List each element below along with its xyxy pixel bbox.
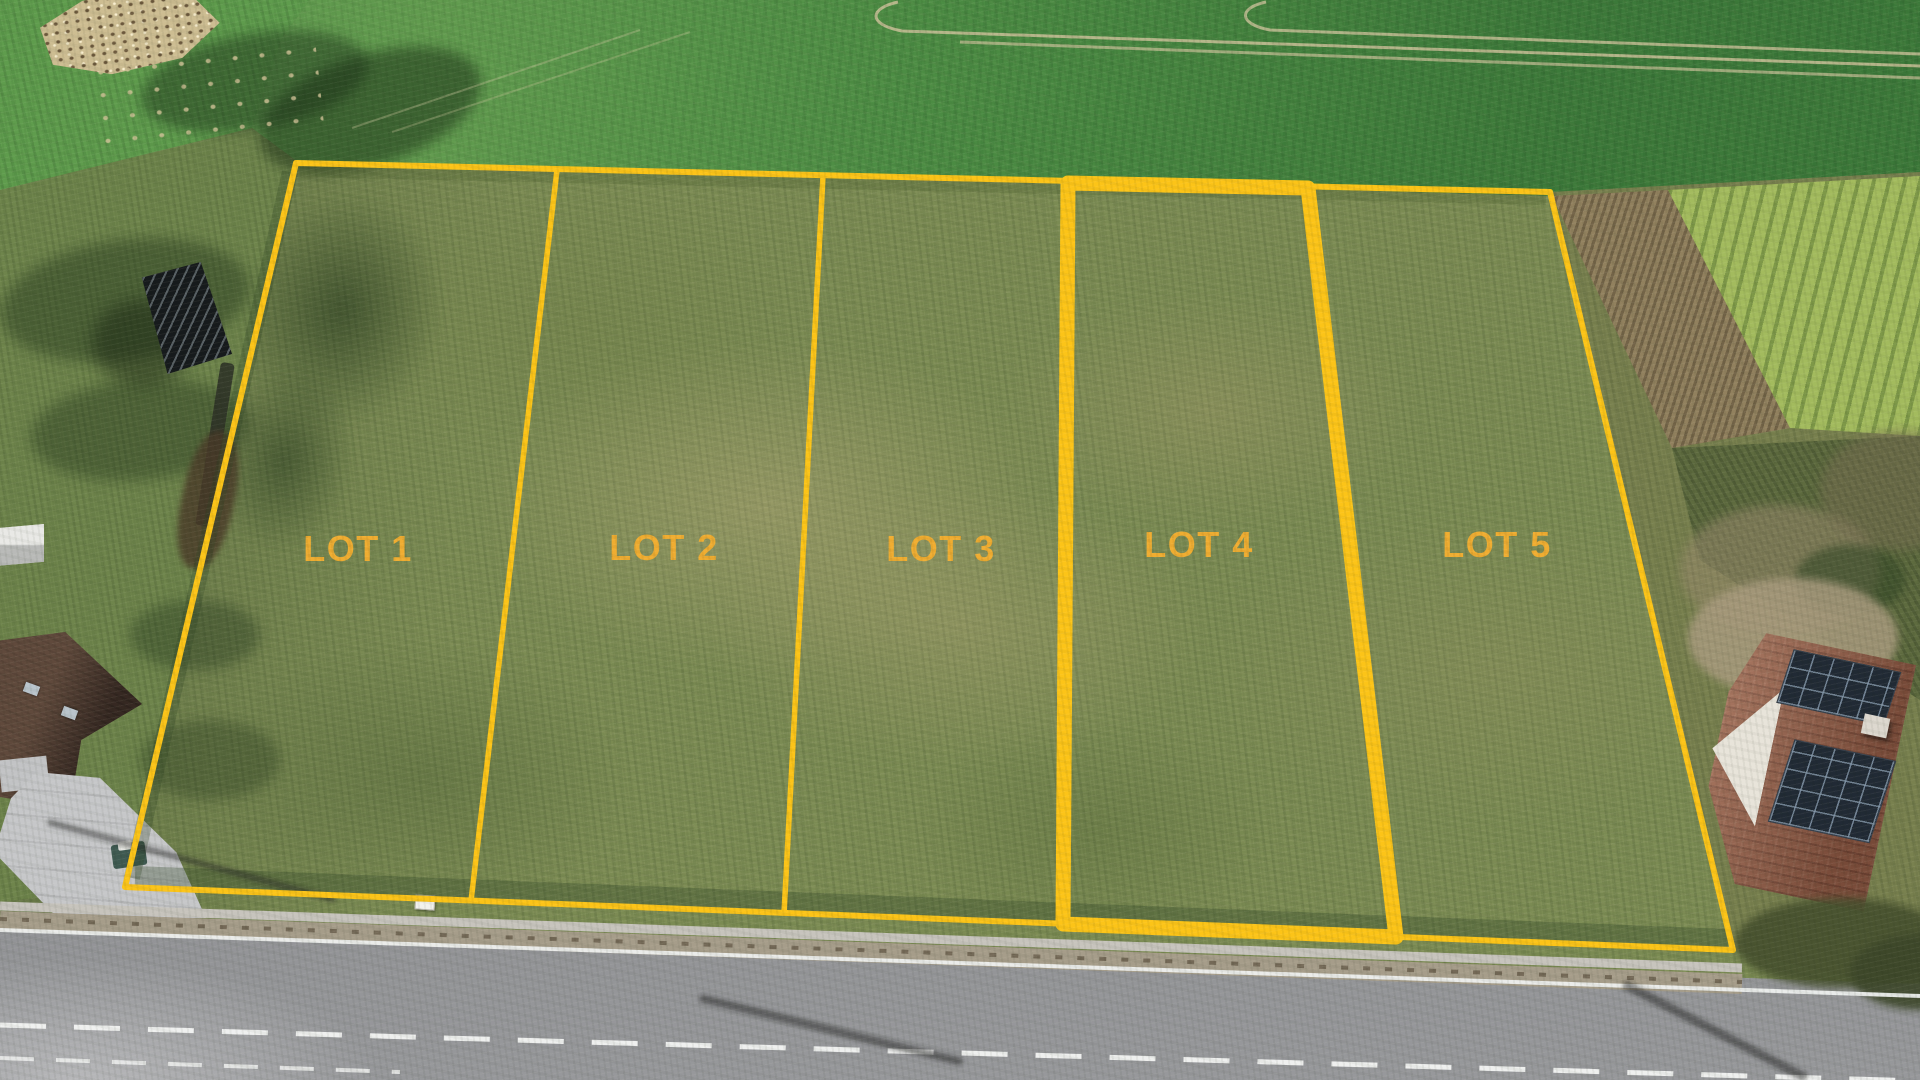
aerial-photo: LOT 1 LOT 2 LOT 3 LOT 4 LOT 5 [0,0,1920,1080]
lot-divider-2-3 [784,176,823,914]
road-center-dashed-line [0,1025,1920,1080]
road-corner-dashed-line [0,1058,400,1072]
lot-5-label: LOT 5 [1442,524,1552,565]
tractor-tramlines [352,2,1920,132]
lot-divider-1-2 [471,170,557,901]
lot-overlay: LOT 1 LOT 2 LOT 3 LOT 4 LOT 5 [0,0,1920,1080]
lot-2-label: LOT 2 [609,527,719,568]
lot-4-label: LOT 4 [1144,524,1254,565]
lot-3-label: LOT 3 [886,528,996,569]
lot-1-label: LOT 1 [303,528,413,569]
